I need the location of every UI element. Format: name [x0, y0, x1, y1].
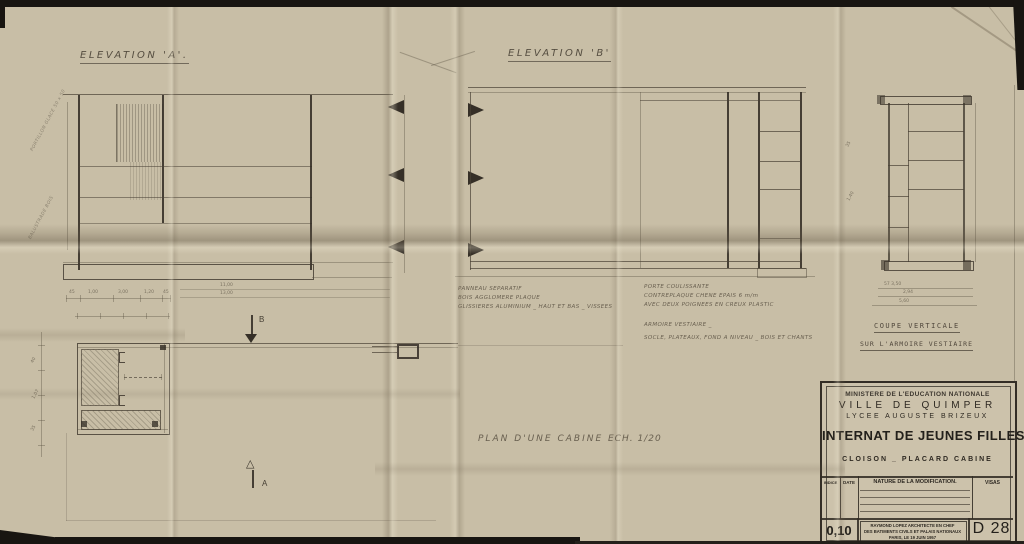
- elevation-b-plinth-step: [757, 268, 807, 278]
- elevation-b-door-edge: [640, 92, 641, 268]
- photo-edge-bottom-mid: [55, 537, 580, 544]
- elevation-b-bottom-line-2: [470, 268, 806, 269]
- elevation-b-top-shelf: [640, 100, 802, 101]
- left-marker-triangle-1: [388, 100, 404, 114]
- vertical-fold-4: [610, 0, 623, 544]
- left-marker-triangle-3: [388, 240, 404, 254]
- elevation-a-dim-4: 1,20: [144, 290, 154, 295]
- plan-bench-hatched: [81, 410, 161, 430]
- elevation-b-post-1: [727, 92, 729, 268]
- horizontal-fold-low-left: [0, 388, 460, 400]
- section-b-arrow-head: [245, 334, 257, 343]
- note-wardrobe-line1: ARMOIRE VESTIAIRE _: [644, 322, 712, 328]
- coupe-title-line2: SUR L'ARMOIRE VESTIAIRE: [860, 340, 973, 351]
- elevation-a-mid-post: [162, 95, 164, 223]
- dim-tick: [146, 313, 147, 319]
- horizontal-fold-left: [0, 328, 185, 342]
- title-block-mod-row-4: [860, 511, 970, 512]
- plan-door-swing-dashed: [124, 377, 162, 378]
- coupe-top-bar: [880, 96, 972, 105]
- elevation-a-title: ELEVATION 'A'.: [80, 50, 189, 64]
- dim-tick: [38, 420, 45, 421]
- title-block-mod-row-1: [860, 490, 970, 491]
- coupe-dim-line-2: [878, 296, 973, 297]
- title-block-divider: [820, 476, 1013, 478]
- coupe-shelf-3: [908, 189, 964, 190]
- plan-wall-continuation: [458, 345, 623, 346]
- section-b-label: B: [259, 315, 264, 324]
- note-door-line1: PORTE COULISSANTE: [644, 284, 709, 290]
- marker-line-left: [404, 95, 405, 273]
- dim-tick: [38, 395, 45, 396]
- elevation-b-left-edge: [470, 92, 471, 270]
- title-block-school: LYCEE AUGUSTE BRIZEUX: [824, 413, 1011, 420]
- plan-armoire-hatched: [81, 349, 119, 406]
- plan-door-jamb-detail: [397, 344, 419, 359]
- title-block-mod-row-3: [860, 504, 970, 505]
- elevation-b-shelf-3: [759, 189, 800, 190]
- dim-tick: [113, 295, 114, 302]
- dim-tick: [170, 295, 171, 302]
- title-block-subject: CLOISON _ PLACARD CABINE: [824, 456, 1011, 463]
- coupe-bottom-cap-left: [881, 260, 889, 270]
- coupe-dim-line-1: [878, 288, 973, 289]
- architect-line-1: RAYMOND LOPEZ ARCHITECTE EN CHEF: [861, 523, 964, 528]
- plan-jamb-line-1: [372, 346, 397, 347]
- photo-edge-top: [0, 0, 1024, 7]
- plan-title: PLAN D'UNE CABINE: [478, 434, 603, 444]
- coupe-dim-row-3: 5,60: [899, 299, 909, 304]
- plan-scale: ECH. 1/20: [608, 434, 662, 444]
- plan-side-dim-1: 40: [30, 357, 37, 364]
- elevation-a-dim-chain-line: [66, 298, 171, 299]
- note-panel-line3: GLISSIERES ALUMINIUM _ HAUT ET BAS _ VIS…: [458, 304, 612, 310]
- elevation-b-post-2: [758, 92, 760, 268]
- dim-tick: [140, 295, 141, 302]
- elevation-a-top-line: [63, 94, 393, 95]
- plan-frame-left: [66, 433, 67, 521]
- coupe-bottom-cap-right: [963, 260, 971, 270]
- plan-bench-block-right: [152, 421, 158, 427]
- coupe-outer-dashed: [975, 103, 976, 262]
- elevation-a-dim-3: 3,00: [118, 290, 128, 295]
- elevation-a-side-dim-line: [67, 102, 68, 250]
- dim-tick: [77, 313, 78, 319]
- elevation-b-shelf-2: [759, 161, 800, 162]
- elevation-a-left-post: [78, 95, 80, 270]
- elevation-a-side-note-1: PORTILLON GLACE 50 x 50: [30, 89, 67, 153]
- coupe-dim-line-3: [872, 305, 977, 306]
- elevation-a-dim-2: 1,00: [88, 290, 98, 295]
- drawing-number: D 28: [970, 520, 1013, 538]
- dim-tick: [123, 313, 124, 319]
- elevation-a-dim-5: 45: [163, 290, 169, 295]
- title-block-header-visas: VISAS: [972, 480, 1013, 486]
- vertical-fold-2: [382, 0, 398, 544]
- elevation-a-shelf-2: [78, 197, 312, 198]
- plan-bench-block-left: [81, 421, 87, 427]
- horizontal-fold-main: [0, 224, 1024, 254]
- architect-line-3: PARIS, LE 19 JUIN 1957: [861, 535, 964, 540]
- dim-tick: [38, 345, 45, 346]
- section-a-arrow-stem: [252, 470, 254, 488]
- plan-corner-block: [160, 345, 166, 350]
- paper-right-edge: [1014, 85, 1015, 381]
- elevation-a-total-line-1: [180, 289, 390, 290]
- scanned-architectural-drawing: ELEVATION 'A'. PORTILLON GLACE 50 x 50 B…: [0, 0, 1024, 544]
- dim-tick: [100, 313, 101, 319]
- elevation-b-right-edge: [800, 92, 802, 268]
- coupe-side-label-2: 1,40: [846, 191, 855, 202]
- plan-frame-bottom: [66, 520, 436, 521]
- plan-jamb-line-2: [372, 352, 397, 353]
- coupe-top-cap-left: [877, 95, 885, 104]
- title-block-scale-value: 0,10: [822, 523, 856, 538]
- coupe-mid-wall: [908, 103, 909, 262]
- pencil-stroke: [431, 51, 475, 66]
- plan-cabin-inner-top: [77, 347, 168, 348]
- coupe-side-label-1: 35: [845, 141, 852, 148]
- coupe-divider-1: [888, 165, 909, 166]
- elevation-a-shelf-1: [78, 166, 312, 167]
- coupe-dim-row-2: 2,94: [903, 290, 913, 295]
- left-marker-triangle-2: [388, 168, 404, 182]
- title-block-ministry: MINISTERE DE L'EDUCATION NATIONALE: [824, 391, 1011, 398]
- coupe-right-wall: [963, 103, 965, 262]
- elevation-a-total-line-2: [180, 297, 390, 298]
- title-block-project: INTERNAT DE JEUNES FILLES.: [822, 428, 1013, 443]
- elevation-b-bottom-line-1: [470, 261, 802, 262]
- title-block-city: VILLE DE QUIMPER: [824, 400, 1011, 411]
- plan-cabin-inner-right: [164, 343, 165, 433]
- coupe-divider-2: [888, 196, 909, 197]
- elevation-a-floor-line: [63, 262, 393, 263]
- elevation-a-shelf-3: [78, 223, 312, 224]
- plan-swing-tick-right: [161, 374, 162, 380]
- elevation-a-hatched-panel-lower: [130, 162, 162, 200]
- elevation-a-side-note-2: BALUSTRADE BOIS: [28, 195, 55, 240]
- title-block-header-date: DATE: [840, 480, 858, 485]
- horizontal-fold-mid: [375, 462, 845, 476]
- plan-hinge-bracket-bottom: [119, 395, 125, 406]
- dim-tick: [38, 370, 45, 371]
- elevation-a-total-1: 11,00: [220, 283, 233, 288]
- dim-tick: [66, 295, 67, 302]
- pencil-stroke: [400, 52, 457, 73]
- section-a-arrow-head: △: [246, 457, 254, 470]
- plan-hinge-bracket-top: [119, 352, 125, 363]
- elevation-b-top-line-2: [468, 92, 806, 93]
- plan-swing-tick-left: [124, 374, 125, 380]
- dim-tick: [162, 295, 163, 302]
- elevation-a-right-post: [310, 95, 312, 270]
- coupe-divider-3: [888, 227, 909, 228]
- elevation-a-plinth: [63, 264, 314, 280]
- title-block-mod-row-2: [860, 497, 970, 498]
- elevation-a-dim-1: 45: [69, 290, 75, 295]
- elevation-a-hatched-panel: [116, 104, 163, 162]
- elevation-b-shelf-1: [759, 131, 800, 132]
- note-wardrobe-line2: SOCLE, PLATEAUX, FOND A NIVEAU _ BOIS ET…: [644, 335, 813, 341]
- title-block-header-nature: NATURE DE LA MODIFICATION.: [858, 479, 972, 485]
- elevation-b-title: ELEVATION 'B': [508, 48, 611, 62]
- coupe-bottom-bar: [884, 261, 974, 271]
- note-door-line2: CONTREPLAQUE CHENE EPAIS 6 m/m: [644, 293, 758, 299]
- coupe-title-line1: COUPE VERTICALE: [874, 322, 960, 333]
- title-block-header-indice: INDICE: [821, 480, 840, 485]
- coupe-left-wall: [888, 103, 890, 262]
- elevation-a-total-2: 13,00: [220, 291, 233, 296]
- note-door-line3: AVEC DEUX POIGNEES EN CREUX PLASTIC: [644, 302, 774, 308]
- dim-tick: [80, 295, 81, 302]
- note-panel-line1: PANNEAU SEPARATIF: [458, 286, 522, 292]
- coupe-shelf-2: [908, 160, 964, 161]
- note-panel-line2: BOIS AGGLOMERE PLAQUE: [458, 295, 540, 301]
- photo-edge-top-right: [1013, 0, 1024, 90]
- architect-line-2: DES BATIMENTS CIVILS ET PALAIS NATIONAUX: [861, 529, 964, 534]
- coupe-shelf-1: [908, 131, 964, 132]
- elevation-b-top-line-1: [468, 87, 806, 88]
- dim-tick: [168, 313, 169, 319]
- elevation-b-shelf-4: [759, 238, 800, 239]
- plan-side-dim-3: 35: [30, 425, 37, 432]
- coupe-dim-row-1: 57 3,50: [884, 282, 901, 287]
- section-a-label: A: [262, 479, 267, 488]
- dim-tick: [38, 445, 45, 446]
- section-b-arrow-stem: [251, 315, 253, 334]
- corner-crease-line: [951, 6, 1024, 80]
- vertical-fold-3: [450, 0, 465, 544]
- elevation-a-plinth-extension: [312, 277, 392, 278]
- photo-edge-left-top: [0, 0, 5, 28]
